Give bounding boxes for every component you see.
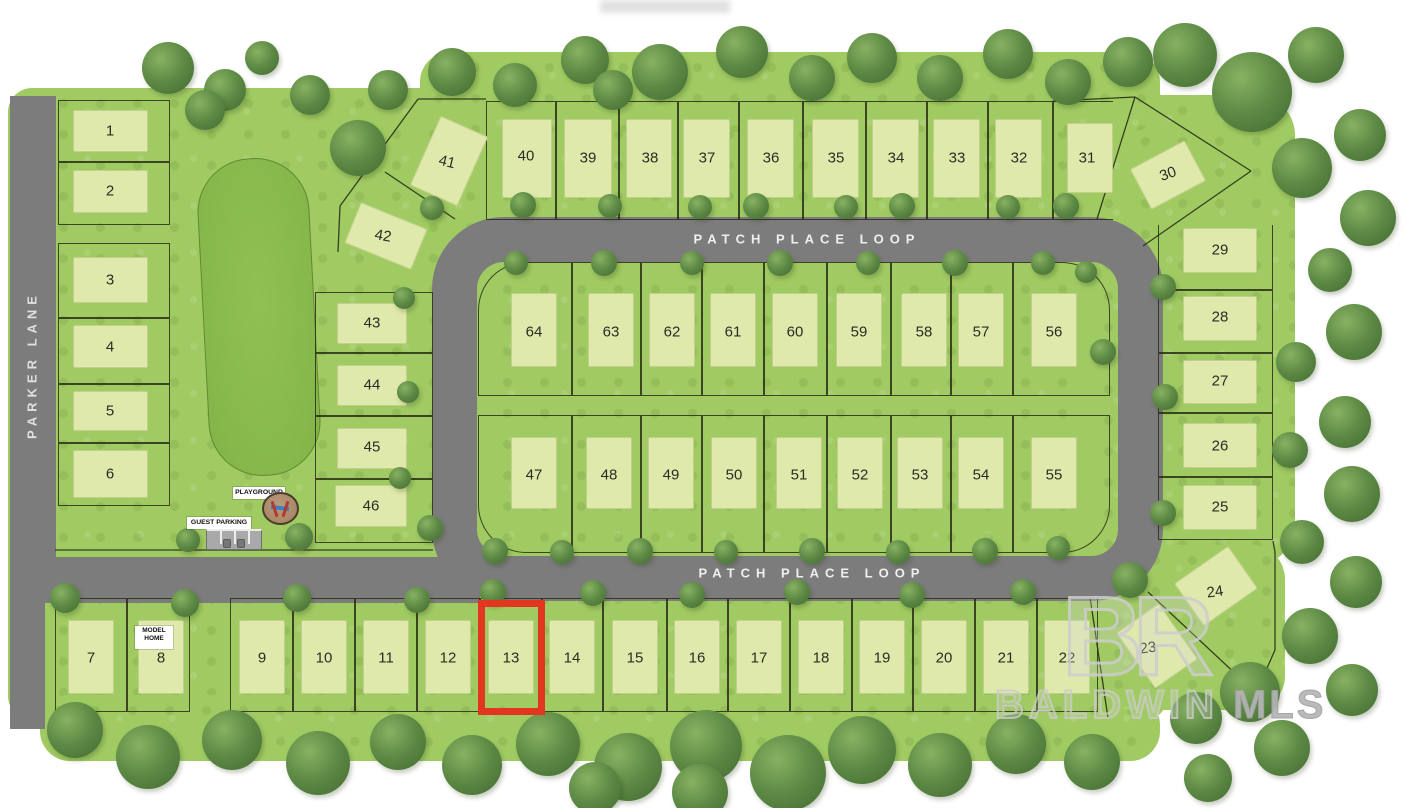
tree-icon [1152, 384, 1178, 410]
tree-icon [1184, 754, 1232, 802]
tree-icon [1046, 536, 1070, 560]
car-icon [237, 539, 245, 548]
tree-icon [1045, 59, 1091, 105]
tree-icon [1150, 274, 1176, 300]
car-icon [223, 539, 231, 548]
parking-stall-line [220, 531, 222, 544]
lot-44-number: 44 [364, 377, 381, 394]
tree-icon [550, 540, 574, 564]
tree-icon [504, 251, 528, 275]
tree-icon [1326, 664, 1378, 716]
tree-icon [176, 528, 200, 552]
tree-icon [889, 193, 915, 219]
tree-icon [593, 70, 633, 110]
tree-icon [516, 712, 580, 776]
tree-icon [714, 540, 738, 564]
tree-icon [442, 735, 502, 795]
lot-50-number: 50 [726, 467, 743, 484]
lot-21-number: 21 [998, 650, 1015, 667]
lot-20-number: 20 [936, 650, 953, 667]
lot-15-number: 15 [627, 650, 644, 667]
lot-42-number: 42 [373, 226, 392, 246]
lot-38-number: 38 [642, 150, 659, 167]
lot-24-number: 24 [1206, 582, 1225, 601]
tree-icon [688, 195, 712, 219]
tree-icon [917, 55, 963, 101]
tree-icon [1212, 52, 1292, 132]
lot-32-number: 32 [1011, 150, 1028, 167]
tree-icon [420, 196, 444, 220]
tree-icon [591, 250, 617, 276]
guest-parking-icon [206, 529, 262, 550]
lot-39-number: 39 [580, 150, 597, 167]
tree-icon [50, 583, 80, 613]
tree-icon [417, 515, 443, 541]
lot-9-number: 9 [258, 650, 266, 667]
lot-6-number: 6 [106, 466, 114, 483]
tree-icon [1064, 734, 1120, 790]
tree-icon [510, 192, 536, 218]
lot-63-number: 63 [603, 324, 620, 341]
lot-3-number: 3 [106, 272, 114, 289]
tree-icon [370, 714, 426, 770]
tree-icon [569, 762, 621, 808]
tree-icon [632, 44, 688, 100]
tree-icon [245, 41, 279, 75]
guest-parking-label: GUEST PARKING [187, 517, 251, 529]
tree-icon [286, 731, 350, 795]
tree-icon [908, 733, 972, 797]
lot-18-number: 18 [813, 650, 830, 667]
tree-icon [789, 55, 835, 101]
subdivision-plat-map: PARKER LANE PATCH PLACE LOOP PATCH PLACE… [0, 0, 1406, 808]
lot-12-number: 12 [440, 650, 457, 667]
tree-icon [767, 250, 793, 276]
playground-icon [262, 492, 299, 525]
tree-icon [47, 702, 103, 758]
tree-icon [996, 195, 1020, 219]
lot-1-number: 1 [106, 123, 114, 140]
tree-icon [1308, 248, 1352, 292]
tree-icon [1254, 720, 1310, 776]
tree-icon [1280, 520, 1324, 564]
lot-62-number: 62 [664, 324, 681, 341]
tree-icon [1075, 261, 1097, 283]
watermark-mls: MLS [1233, 683, 1326, 727]
tree-icon [1288, 27, 1344, 83]
tree-icon [679, 582, 705, 608]
lot-34-number: 34 [888, 150, 905, 167]
tree-icon [1053, 193, 1079, 219]
lot-17-number: 17 [751, 650, 768, 667]
tree-icon [404, 587, 430, 613]
tree-icon [972, 538, 998, 564]
tree-icon [493, 63, 537, 107]
lot-7-number: 7 [87, 650, 95, 667]
tree-icon [834, 195, 858, 219]
lot-26-number: 26 [1212, 438, 1229, 455]
tree-icon [1282, 608, 1338, 664]
tree-icon [482, 538, 508, 564]
tree-icon [285, 523, 313, 551]
tree-icon [1319, 396, 1371, 448]
tree-icon [1276, 342, 1316, 382]
tree-icon [983, 29, 1033, 79]
tree-icon [290, 75, 330, 115]
lot-59-number: 59 [851, 324, 868, 341]
tree-icon [899, 582, 925, 608]
lot-40-number: 40 [518, 148, 535, 165]
lot-33-number: 33 [949, 150, 966, 167]
lot-45-number: 45 [364, 439, 381, 456]
tree-icon [856, 251, 880, 275]
lot-43-number: 43 [364, 315, 381, 332]
tree-icon [283, 584, 311, 612]
lot-36-number: 36 [763, 150, 780, 167]
tree-icon [393, 287, 415, 309]
parking-stall-line [248, 531, 250, 544]
lot-52-number: 52 [852, 467, 869, 484]
lot-48-number: 48 [601, 467, 618, 484]
tree-icon [1330, 556, 1382, 608]
model-home-label: MODEL HOME [135, 626, 173, 649]
tree-icon [1326, 304, 1382, 360]
tree-icon [142, 42, 194, 94]
lot-35-number: 35 [828, 150, 845, 167]
tree-icon [1150, 500, 1176, 526]
tree-icon [397, 381, 419, 403]
lot-47-number: 47 [526, 467, 543, 484]
watermark-baldwin: BALDWIN [995, 683, 1219, 727]
tree-icon [1090, 339, 1116, 365]
lot-37-number: 37 [699, 150, 716, 167]
lot-31-number: 31 [1079, 150, 1096, 167]
tree-icon [428, 48, 476, 96]
lot-13-highlight-box [478, 600, 545, 715]
tree-icon [886, 540, 910, 564]
tree-icon [750, 735, 826, 808]
tree-icon [1324, 466, 1380, 522]
tree-icon [202, 710, 262, 770]
lot-60-number: 60 [787, 324, 804, 341]
tree-icon [784, 579, 810, 605]
baldwin-mls-text-watermark: BALDWIN MLS [995, 683, 1326, 728]
lot-54-number: 54 [973, 467, 990, 484]
tree-icon [743, 193, 769, 219]
tree-icon [598, 194, 622, 218]
tree-icon [1153, 23, 1217, 87]
lot-28-number: 28 [1212, 309, 1229, 326]
tree-icon [627, 538, 653, 564]
tree-icon [580, 580, 606, 606]
lot-49-number: 49 [663, 467, 680, 484]
lot-55-number: 55 [1046, 467, 1063, 484]
tree-icon [368, 70, 408, 110]
tree-icon [116, 725, 180, 789]
tree-icon [330, 120, 386, 176]
lot-46-number: 46 [363, 498, 380, 515]
lot-16-number: 16 [689, 650, 706, 667]
tree-icon [1334, 109, 1386, 161]
tree-icon [799, 538, 825, 564]
tree-icon [1103, 37, 1153, 87]
lot-56-number: 56 [1046, 324, 1063, 341]
parking-stall-line [234, 531, 236, 544]
lot-5-number: 5 [106, 403, 114, 420]
tree-icon [1272, 432, 1308, 468]
lot-8-number: 8 [157, 650, 165, 667]
lot-14-number: 14 [564, 650, 581, 667]
tree-icon [942, 250, 968, 276]
lot-25-number: 25 [1212, 499, 1229, 516]
lot-19-number: 19 [874, 650, 891, 667]
tree-icon [171, 589, 199, 617]
tree-icon [1340, 190, 1396, 246]
lot-64-number: 64 [526, 324, 543, 341]
lot-51-number: 51 [791, 467, 808, 484]
tree-icon [1272, 138, 1332, 198]
tree-icon [716, 26, 768, 78]
lot-53-number: 53 [912, 467, 929, 484]
lot-4-number: 4 [106, 339, 114, 356]
tree-icon [847, 33, 897, 83]
baldwin-mls-logo-watermark: BR [1062, 572, 1204, 701]
tree-icon [1010, 579, 1036, 605]
lot-27-number: 27 [1212, 373, 1229, 390]
lot-57-number: 57 [973, 324, 990, 341]
lot-11-number: 11 [378, 650, 394, 667]
lot-10-number: 10 [316, 650, 333, 667]
lot-29-number: 29 [1212, 242, 1229, 259]
tree-icon [185, 90, 225, 130]
tree-icon [1031, 251, 1055, 275]
lot-58-number: 58 [916, 324, 933, 341]
tree-icon [828, 716, 896, 784]
lot-2-number: 2 [106, 183, 114, 200]
lot-61-number: 61 [725, 324, 742, 341]
tree-icon [389, 467, 411, 489]
tree-icon [680, 251, 704, 275]
